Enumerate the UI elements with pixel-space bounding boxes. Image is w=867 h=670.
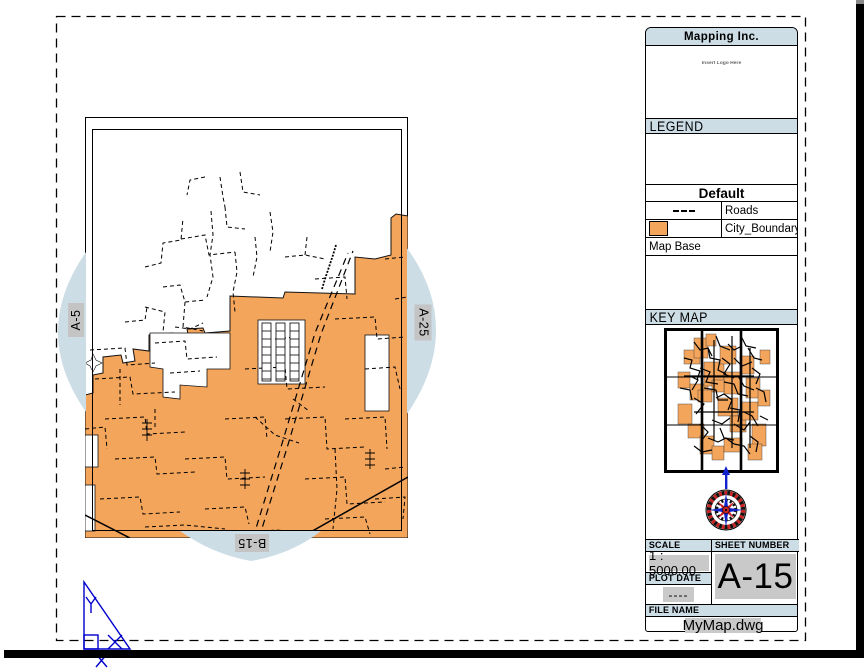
sheet-number-header-band: SHEET NUMBER — [712, 539, 799, 552]
legend-row-city-boundary[interactable]: City_Boundary — [646, 220, 798, 238]
company-header: Mapping Inc. — [646, 28, 797, 46]
legend-header-text: LEGEND — [646, 119, 704, 134]
legend-group-name: Default — [646, 185, 798, 202]
title-block-divider — [711, 539, 712, 604]
north-arrow-shaft — [725, 473, 727, 489]
ucs-y-axis-label — [86, 597, 96, 613]
title-block: Mapping Inc. Insert Logo Here LEGEND Def… — [645, 27, 798, 632]
file-name-value[interactable]: MyMap.dwg — [685, 618, 761, 633]
legend-item-label: Roads — [722, 202, 798, 220]
dashed-line-symbol — [673, 210, 695, 212]
sheet-label-text: A-5 — [70, 310, 83, 331]
ucs-origin-box — [84, 635, 98, 649]
paper-edge-bottom — [4, 650, 864, 658]
plot-date-value[interactable]: ---- — [663, 587, 694, 602]
paper-edge-right — [856, 4, 864, 657]
legend-header-band: LEGEND — [646, 118, 797, 134]
legend-item-label: City_Boundary — [722, 220, 798, 238]
sheet-label-text: B-15 — [238, 537, 266, 550]
adjacent-sheet-label-left[interactable]: A-5 — [68, 303, 84, 337]
ucs-triangle — [84, 582, 130, 649]
company-name: Mapping Inc. — [684, 31, 759, 43]
map-viewport[interactable] — [85, 117, 408, 538]
adjacent-sheet-label-bottom[interactable]: B-15 — [235, 534, 269, 552]
legend-row-roads[interactable]: Roads — [646, 202, 798, 220]
layout-page: A-5 A-25 B-15 Mapping Inc. Insert Logo H… — [0, 0, 867, 670]
legend-symbol-cell — [646, 202, 722, 220]
city-map-drawing — [85, 117, 408, 538]
ucs-x-mark — [108, 635, 122, 649]
compass-pin — [725, 509, 727, 511]
sheet-number-value[interactable]: A-15 — [715, 554, 796, 599]
logo-placeholder: Insert Logo Here — [675, 60, 769, 66]
keymap-header-text: KEY MAP — [646, 310, 708, 325]
sheet-label-text: A-25 — [417, 308, 430, 336]
adjacent-sheet-label-right[interactable]: A-25 — [415, 305, 432, 341]
legend-symbol-cell — [646, 220, 722, 238]
scale-value[interactable]: 1 : 5000.00 — [649, 555, 709, 571]
legend-table: Default Roads City_Boundary Map Base — [645, 184, 798, 256]
sheet-number-label: SHEET NUMBER — [712, 540, 789, 551]
legend-map-base: Map Base — [646, 238, 798, 256]
file-name-label: FILE NAME — [646, 605, 699, 616]
north-arrow-compass — [704, 466, 748, 534]
orange-swatch-symbol — [649, 221, 668, 236]
keymap-header-band: KEY MAP — [646, 309, 797, 325]
key-map-thumbnail[interactable] — [664, 328, 779, 473]
file-name-header-band: FILE NAME — [646, 604, 797, 617]
